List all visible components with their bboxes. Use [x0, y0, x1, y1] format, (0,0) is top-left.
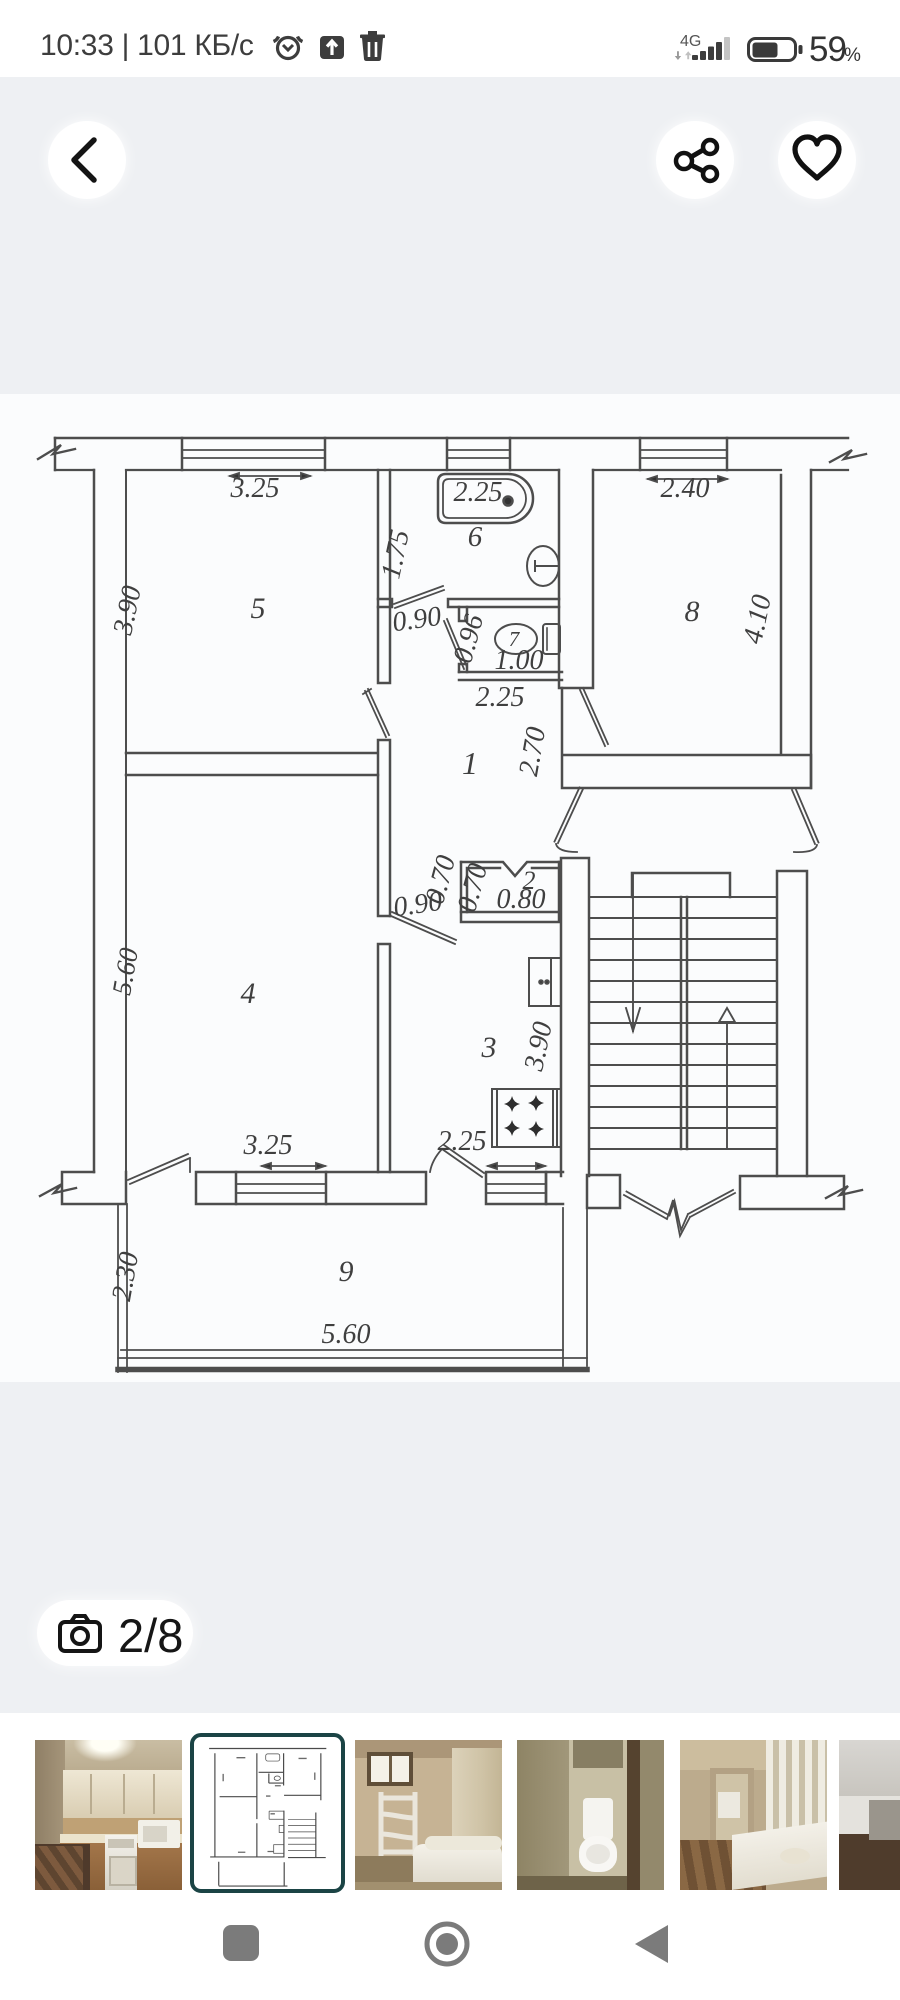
svg-text:3.90: 3.90 — [107, 583, 148, 638]
svg-text:%: % — [844, 45, 861, 66]
svg-text:4.10: 4.10 — [737, 592, 778, 646]
svg-text:2.25: 2.25 — [438, 1126, 487, 1157]
svg-text:5: 5 — [251, 592, 266, 625]
svg-text:2.70: 2.70 — [513, 725, 552, 779]
svg-text:5.60: 5.60 — [106, 945, 144, 997]
svg-text:3.25: 3.25 — [243, 1130, 293, 1161]
svg-text:4: 4 — [241, 977, 256, 1010]
svg-text:6: 6 — [468, 521, 483, 553]
svg-text:0.90: 0.90 — [391, 886, 444, 924]
svg-text:2.25: 2.25 — [476, 682, 525, 713]
svg-text:5.60: 5.60 — [322, 1319, 371, 1350]
svg-text:9: 9 — [339, 1255, 354, 1288]
svg-text:3.25: 3.25 — [230, 473, 280, 504]
svg-text:4G: 4G — [680, 33, 701, 50]
svg-text:1.00: 1.00 — [495, 645, 544, 676]
svg-text:2.40: 2.40 — [661, 473, 710, 504]
svg-text:2.30: 2.30 — [106, 1250, 145, 1304]
svg-text:0.80: 0.80 — [497, 884, 546, 915]
svg-text:2.25: 2.25 — [454, 477, 503, 508]
svg-text:8: 8 — [685, 595, 700, 628]
svg-text:0.90: 0.90 — [390, 601, 443, 639]
svg-text:1: 1 — [462, 745, 478, 781]
svg-text:3: 3 — [481, 1031, 497, 1064]
svg-text:3.90: 3.90 — [518, 1019, 559, 1074]
svg-text:59: 59 — [809, 30, 846, 69]
svg-text:0.96: 0.96 — [447, 611, 490, 666]
svg-text:1.75: 1.75 — [375, 527, 416, 581]
